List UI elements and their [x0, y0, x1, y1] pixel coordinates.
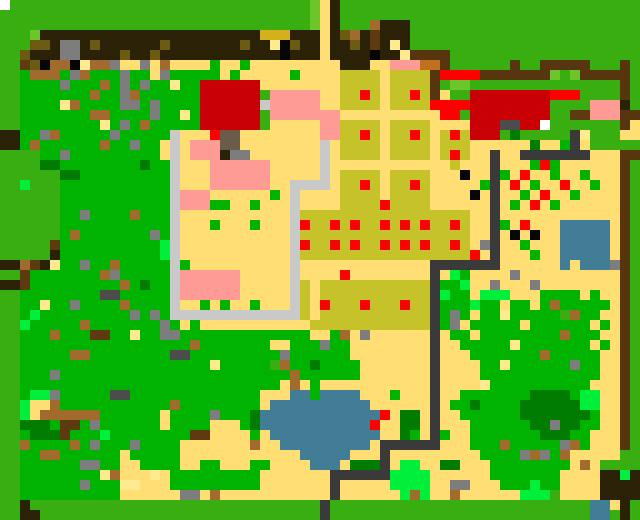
red-stable[interactable]	[480, 80, 550, 130]
homestead-path-outline[interactable]	[170, 130, 330, 320]
red-barn[interactable]	[200, 80, 260, 130]
crop-plot-b[interactable]	[390, 70, 430, 110]
pink-terrace-east[interactable]	[590, 100, 620, 120]
crop-plot-e[interactable]	[340, 170, 380, 210]
crop-field-south[interactable]	[320, 280, 430, 330]
crop-plot-d[interactable]	[390, 120, 430, 160]
dark-trail-cross[interactable]	[430, 260, 500, 270]
farm-map	[0, 0, 640, 520]
spawn-marker[interactable]	[0, 0, 10, 10]
pink-terrace-north[interactable]	[270, 90, 340, 120]
crop-plot-c[interactable]	[340, 120, 380, 160]
crop-plot-a[interactable]	[340, 70, 380, 110]
crop-plot-f[interactable]	[390, 170, 430, 210]
east-boundary-fence[interactable]	[620, 60, 630, 450]
dark-trail-upper[interactable]	[490, 150, 500, 270]
pond-east[interactable]	[560, 220, 610, 270]
dark-trail-lower[interactable]	[330, 440, 440, 500]
north-fence[interactable]	[440, 70, 620, 80]
dark-trail-vertical[interactable]	[430, 260, 440, 450]
